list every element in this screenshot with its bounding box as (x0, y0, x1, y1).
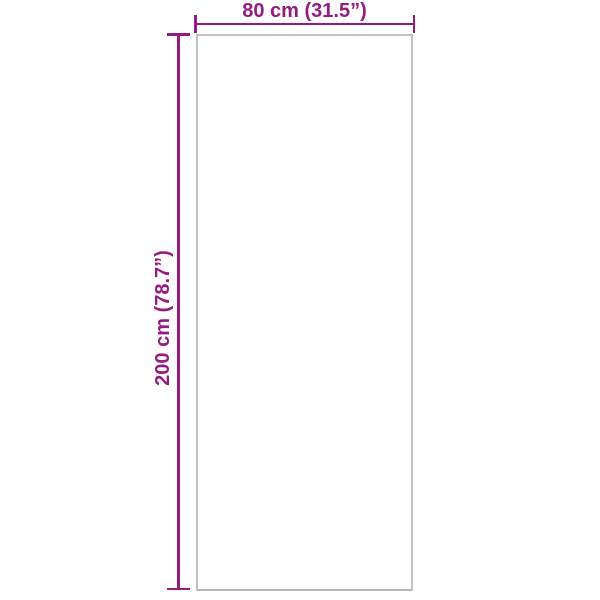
product-outline-rect (196, 34, 413, 591)
height-dimension-label: 200 cm (78.7”) (152, 250, 174, 386)
width-dimension-label: 80 cm (31.5”) (194, 0, 415, 23)
height-dimension-tick-top (167, 33, 190, 36)
height-dimension-tick-bottom (167, 588, 190, 591)
height-dimension-line (177, 33, 180, 590)
dimension-diagram: 80 cm (31.5”) 200 cm (78.7”) (0, 0, 600, 600)
